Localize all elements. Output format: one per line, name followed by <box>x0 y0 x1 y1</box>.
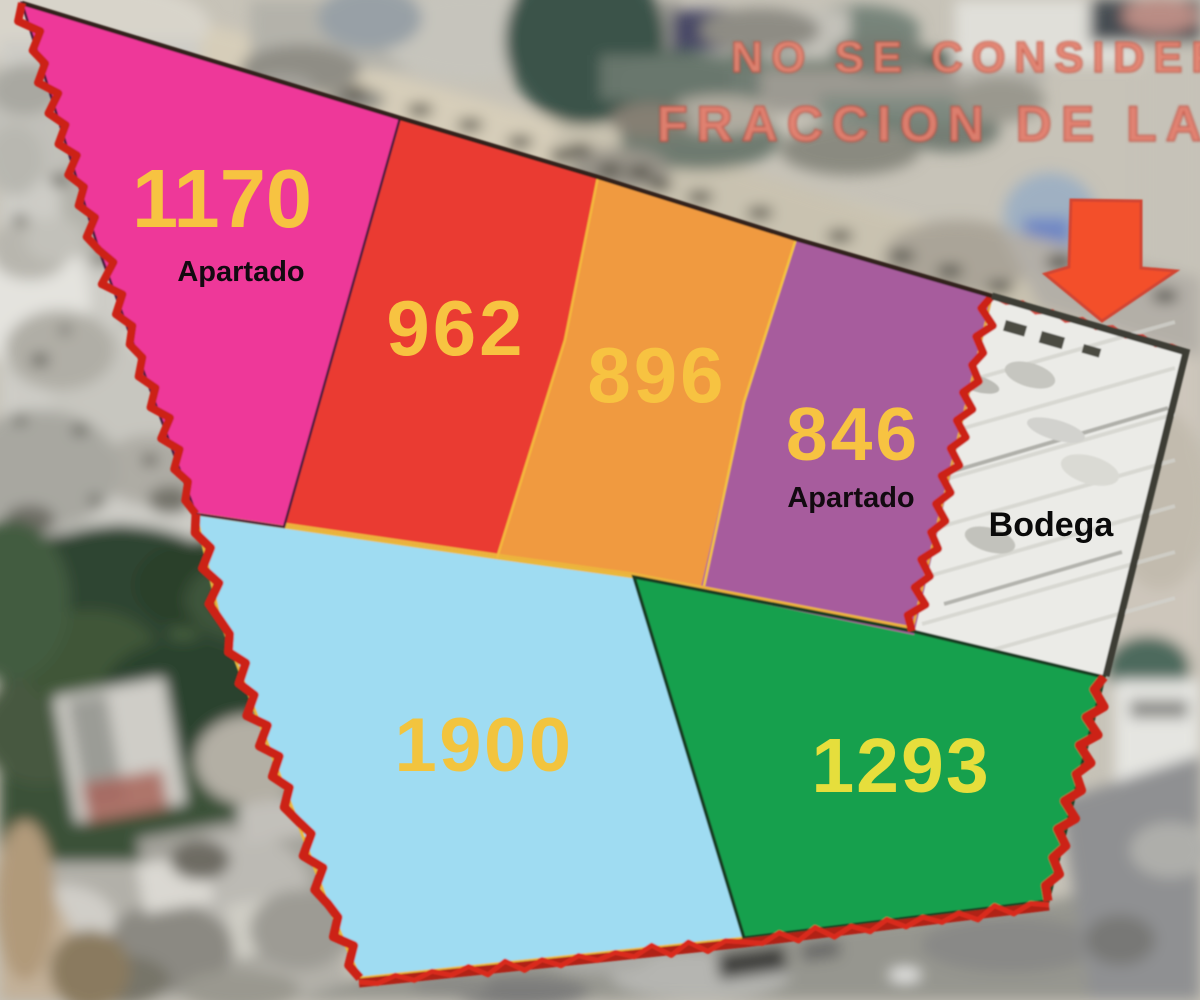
svg-text:NO SE CONSIDER: NO SE CONSIDER <box>731 33 1200 82</box>
svg-text:FRACCION DE LA P: FRACCION DE LA P <box>657 96 1200 152</box>
svg-text:896: 896 <box>587 331 726 419</box>
svg-text:Apartado: Apartado <box>787 482 914 514</box>
svg-text:Apartado: Apartado <box>177 256 304 288</box>
svg-text:962: 962 <box>386 284 525 372</box>
svg-text:1900: 1900 <box>394 703 573 788</box>
svg-text:1170: 1170 <box>132 152 312 245</box>
svg-text:Bodega: Bodega <box>989 506 1115 544</box>
svg-text:1293: 1293 <box>811 723 990 809</box>
svg-text:846: 846 <box>786 392 920 476</box>
